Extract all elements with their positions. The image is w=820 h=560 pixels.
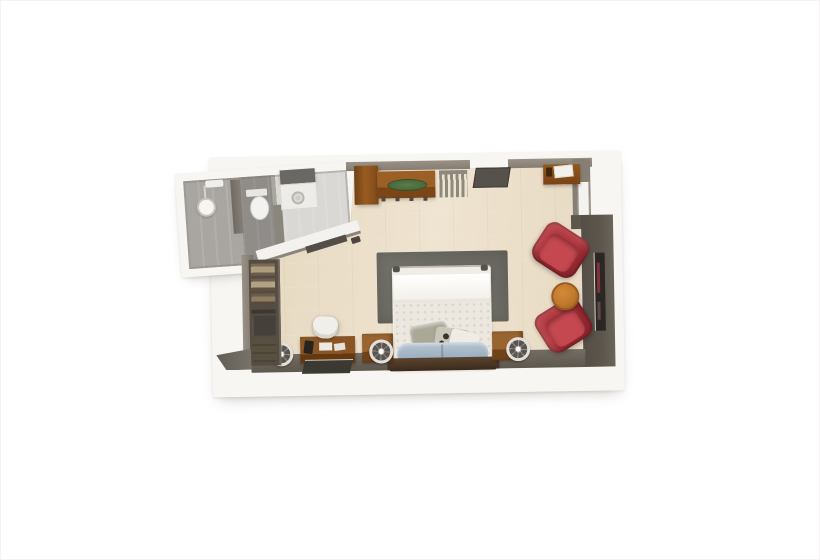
tv-reflection [597, 263, 601, 293]
duvet-fold [393, 274, 490, 303]
closet-shelf [251, 278, 275, 290]
entry-door-mat [473, 167, 511, 188]
desk-phone [303, 340, 314, 354]
headboard [389, 357, 496, 372]
shower-fixture [205, 180, 223, 188]
closet-drawers [252, 337, 276, 361]
radiator [439, 170, 467, 197]
credenza-feet [382, 196, 432, 202]
window [577, 182, 590, 218]
closet-hanging-space [252, 315, 276, 335]
bed-frame-corner-right [481, 265, 488, 271]
tv-reflection [597, 302, 600, 320]
closet-shelf [251, 263, 275, 275]
desk-papers [334, 343, 346, 351]
desk-papers [319, 342, 332, 350]
wardrobe-cabinet [354, 166, 379, 205]
bed [392, 265, 493, 370]
shelf-papers [554, 164, 574, 178]
shelf-item [546, 168, 552, 177]
floor-plan-render [0, 0, 820, 560]
bed-frame-corner-left [393, 266, 400, 272]
closet-shelf [251, 293, 275, 304]
closet-rail [251, 309, 275, 313]
desk-mat [302, 359, 353, 374]
open-closet [249, 259, 282, 366]
plan-group [0, 0, 820, 560]
wall-tv [594, 253, 606, 331]
